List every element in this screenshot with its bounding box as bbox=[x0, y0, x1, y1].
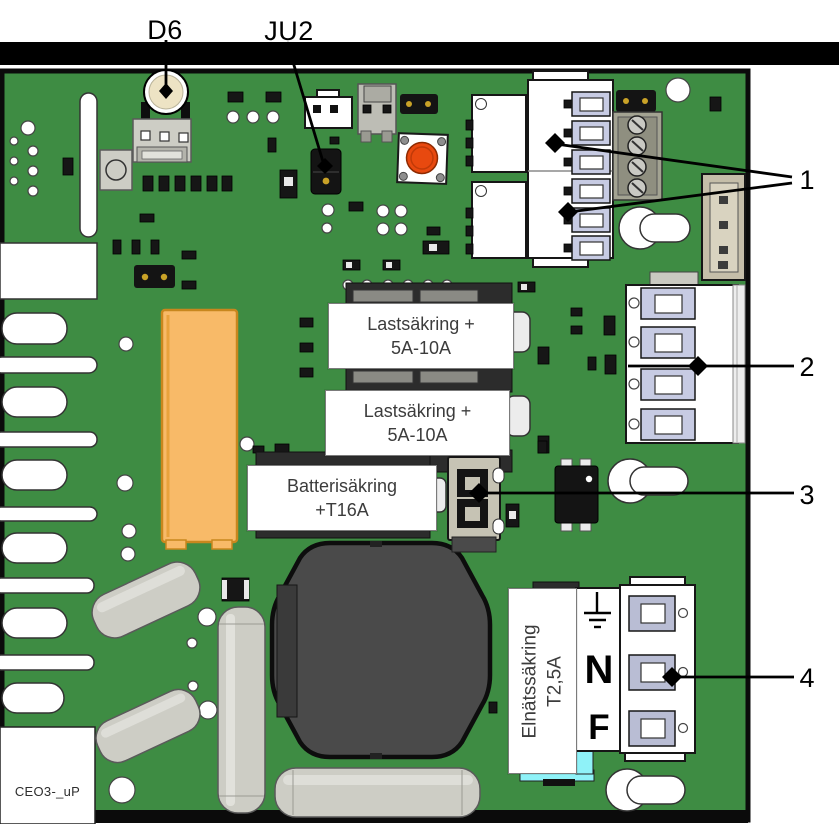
callout-2: 2 bbox=[787, 352, 827, 383]
fuse-label-load-2-line1: Lastsäkring + bbox=[326, 399, 509, 423]
terminal-block-2 bbox=[626, 272, 745, 443]
fuse-label-load-1-line1: Lastsäkring + bbox=[329, 312, 513, 336]
connector-x1 bbox=[133, 119, 191, 162]
inductor bbox=[272, 541, 490, 759]
mount-block bbox=[100, 150, 132, 190]
board-id: CEO3-_uP bbox=[0, 784, 95, 799]
terminal-label-phase: F bbox=[576, 708, 622, 748]
fuse-label-mains-line2: T2,5A bbox=[543, 589, 568, 773]
fuse-label-load-1-line2: 5A-10A bbox=[329, 336, 513, 360]
fuse-label-battery: Batterisäkring +T16A bbox=[247, 465, 437, 531]
terminal-block-4 bbox=[620, 577, 695, 761]
buzzer bbox=[358, 84, 396, 142]
component-label-ju2: JU2 bbox=[258, 16, 320, 47]
callout-4: 4 bbox=[787, 663, 827, 694]
fuse-label-load-2-line2: 5A-10A bbox=[326, 423, 509, 447]
fuse-label-battery-line2: +T16A bbox=[248, 498, 436, 522]
fuse-label-battery-line1: Batterisäkring bbox=[248, 474, 436, 498]
transformer bbox=[162, 310, 237, 549]
top-border-band bbox=[0, 42, 839, 65]
fuse-label-mains-line1: Elnätssäkring bbox=[518, 589, 543, 773]
relay-2 bbox=[466, 182, 526, 258]
terminal-label-neutral: N bbox=[576, 648, 622, 693]
relay-1 bbox=[466, 95, 526, 172]
fuse-label-mains: Elnätssäkring T2,5A bbox=[508, 588, 577, 774]
fuse-label-load-1: Lastsäkring + 5A-10A bbox=[328, 303, 514, 369]
connector-battery bbox=[448, 457, 504, 552]
component-label-d6: D6 bbox=[140, 15, 190, 46]
ic-optocoupler bbox=[555, 459, 598, 531]
callout-3: 3 bbox=[787, 480, 827, 511]
fuse-label-load-2: Lastsäkring + 5A-10A bbox=[325, 390, 510, 456]
callout-1: 1 bbox=[787, 165, 827, 196]
push-button bbox=[397, 133, 448, 184]
terminal-block-1 bbox=[528, 71, 613, 267]
pcb-manual-figure: D6 JU2 1 2 3 4 Lastsäkring + 5A-10A Last… bbox=[0, 0, 839, 824]
